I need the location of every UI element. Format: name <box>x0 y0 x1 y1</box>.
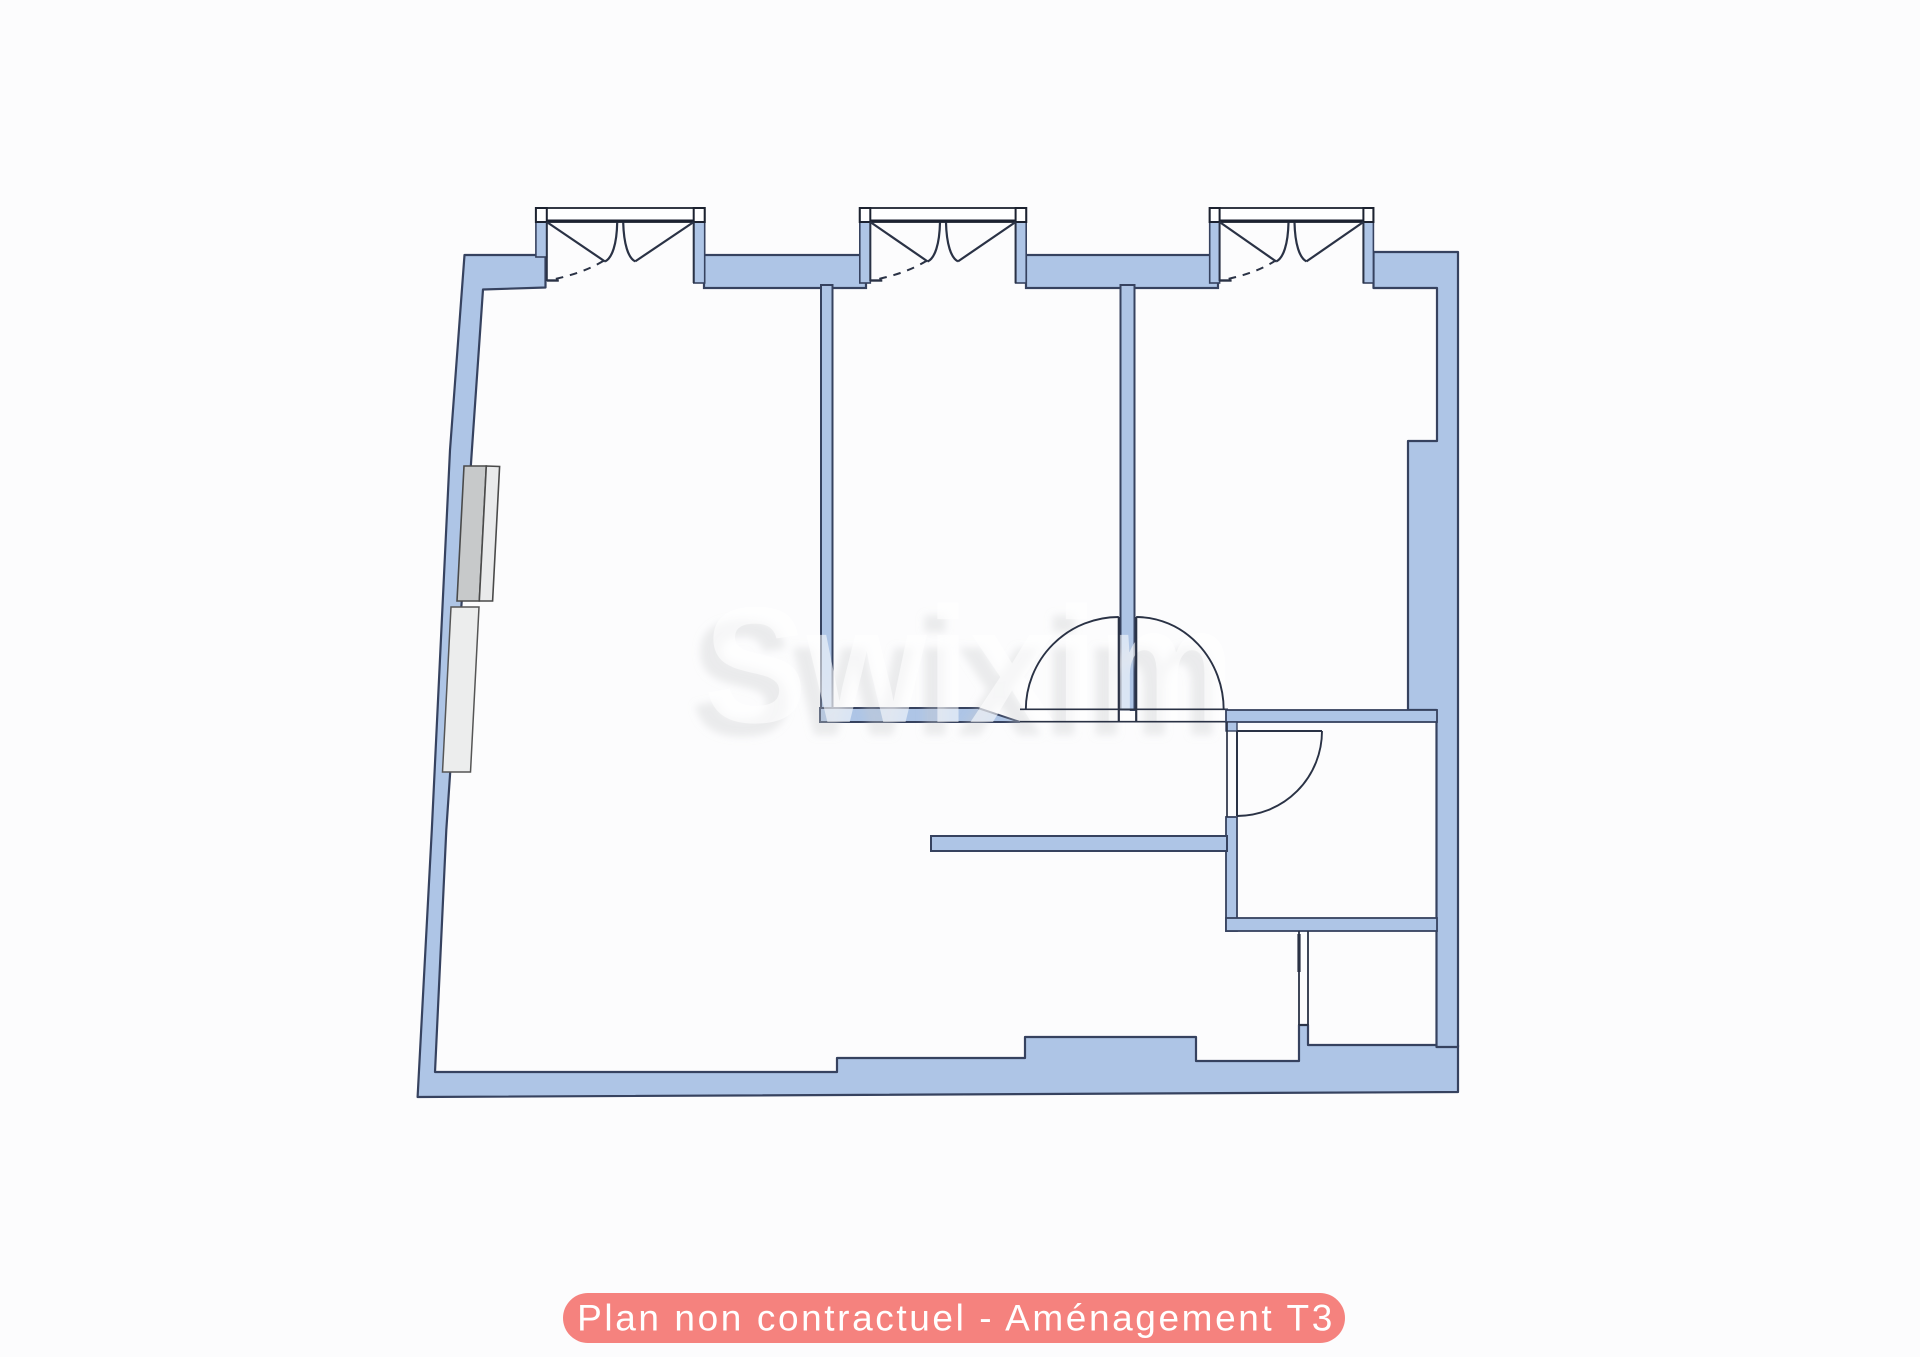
svg-text:Swixim: Swixim <box>704 572 1235 757</box>
svg-text:Plan non contractuel - Aménage: Plan non contractuel - Aménagement T3 <box>577 1298 1335 1339</box>
